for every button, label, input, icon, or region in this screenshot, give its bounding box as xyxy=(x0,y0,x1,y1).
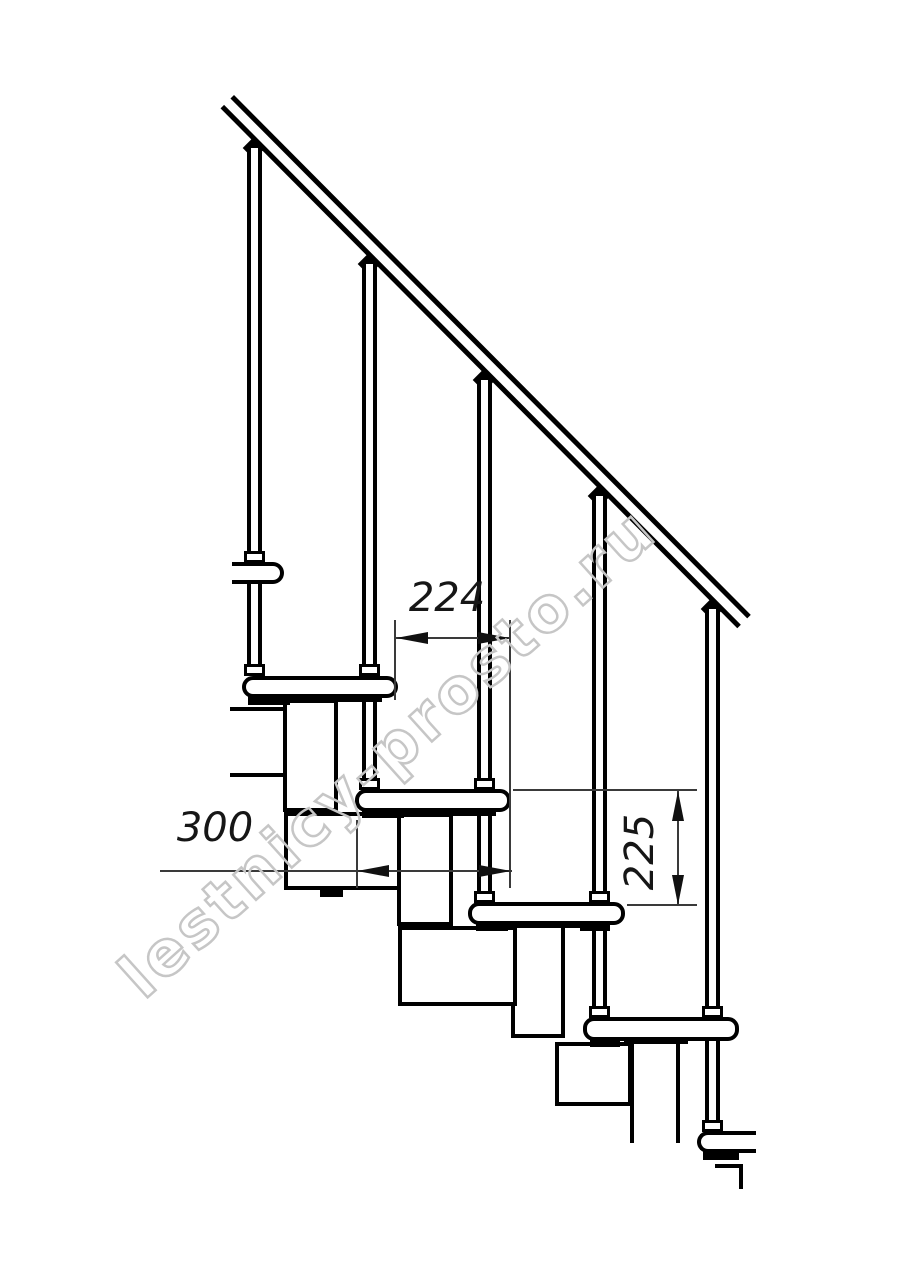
stringer-bracket xyxy=(320,888,343,897)
rod-collar xyxy=(359,664,380,676)
tread-bracket xyxy=(506,922,582,928)
stringer-module-tube-cut xyxy=(630,1040,680,1143)
dimension-arrow-right-icon xyxy=(479,865,511,877)
baluster-rod-5 xyxy=(705,609,720,1006)
tread-bracket xyxy=(290,696,382,702)
dimension-arrow-left-icon xyxy=(357,865,389,877)
tread-bracket xyxy=(580,922,610,931)
tread-1-cut xyxy=(232,562,284,584)
rod-collar xyxy=(244,664,265,676)
rod-collar xyxy=(244,551,265,563)
stringer-module-tube xyxy=(511,924,565,1038)
tread-bracket xyxy=(624,1038,688,1044)
baluster-rod-1 xyxy=(247,584,262,664)
rod-collar xyxy=(589,1006,610,1018)
stringer-module-cut xyxy=(230,707,285,777)
tread-bracket xyxy=(404,810,496,816)
dimension-label-run: 224 xyxy=(402,576,492,620)
tread-bracket xyxy=(590,1038,620,1047)
baluster-rod-1 xyxy=(247,148,262,552)
tread-bracket xyxy=(703,1150,739,1160)
tread-bracket xyxy=(248,696,290,705)
baluster-rod-5 xyxy=(705,1041,720,1120)
technical-drawing: 224 300 225 lestnicy-prosto.ru xyxy=(0,0,914,1280)
stringer-module-sleeve xyxy=(398,926,517,1006)
extension-line xyxy=(627,904,697,906)
dimension-label-rise: 225 xyxy=(618,802,662,902)
baluster-rod-2 xyxy=(362,264,377,664)
stringer-module-sleeve xyxy=(555,1042,632,1106)
tread-bracket xyxy=(476,922,508,931)
dimension-arrow-up-icon xyxy=(672,791,684,821)
stringer-cut-line xyxy=(739,1164,743,1189)
rod-collar xyxy=(702,1006,723,1018)
baluster-rod-4 xyxy=(592,925,607,1006)
rod-collar xyxy=(702,1120,723,1132)
dimension-arrow-left-icon xyxy=(396,632,428,644)
tread-2 xyxy=(242,676,398,698)
baluster-rod-3 xyxy=(477,812,492,891)
rod-collar xyxy=(474,891,495,903)
rod-collar xyxy=(474,778,495,790)
rod-collar xyxy=(589,891,610,903)
extension-line xyxy=(513,789,697,791)
dimension-arrow-down-icon xyxy=(672,875,684,905)
